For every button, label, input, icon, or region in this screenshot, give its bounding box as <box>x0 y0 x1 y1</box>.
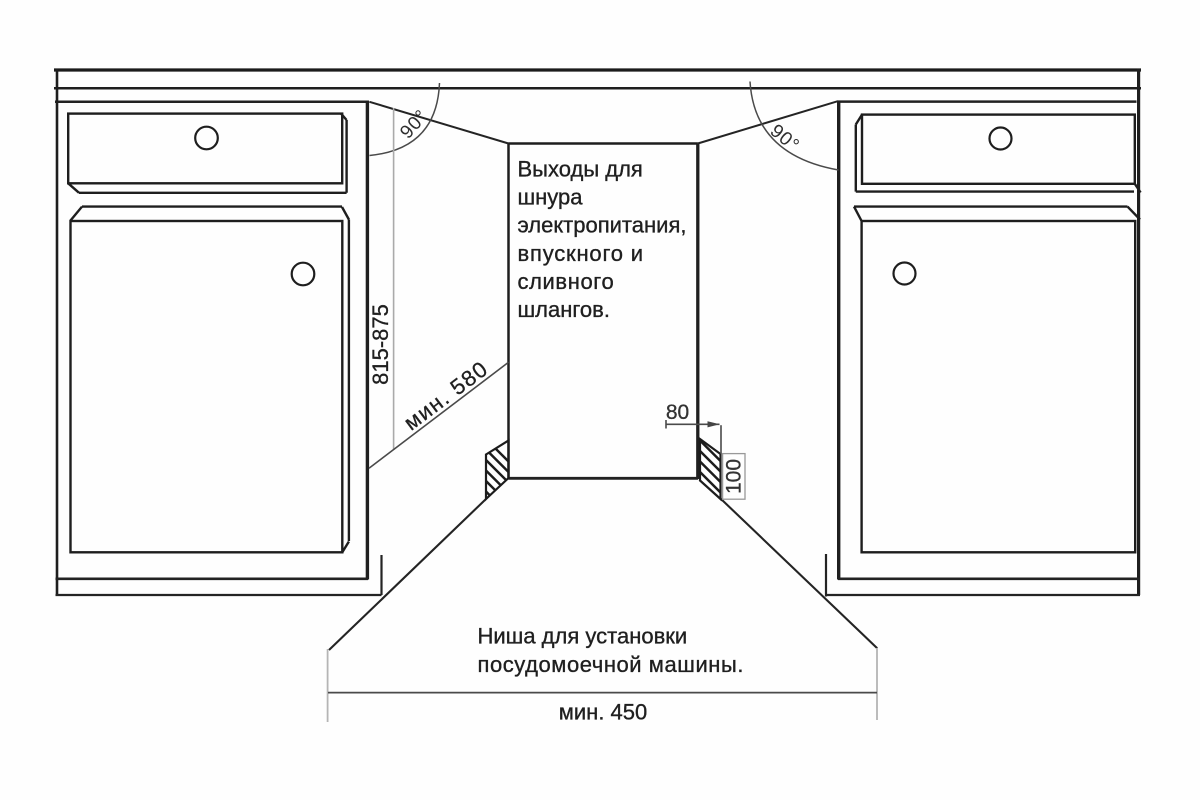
svg-text:шлангов.: шлангов. <box>518 297 610 322</box>
svg-text:100: 100 <box>723 459 746 494</box>
svg-text:мин. 450: мин. 450 <box>559 700 648 725</box>
svg-text:шнура: шнура <box>518 185 584 210</box>
svg-text:80: 80 <box>666 401 689 424</box>
svg-text:электропитания,: электропитания, <box>518 213 687 238</box>
svg-text:815-875: 815-875 <box>368 304 393 385</box>
svg-text:посудомоечной машины.: посудомоечной машины. <box>478 652 745 677</box>
svg-text:впускного и: впускного и <box>518 241 644 266</box>
svg-text:сливного: сливного <box>518 269 615 294</box>
svg-text:Ниша для установки: Ниша для установки <box>478 624 688 649</box>
svg-text:Выходы для: Выходы для <box>518 157 643 182</box>
